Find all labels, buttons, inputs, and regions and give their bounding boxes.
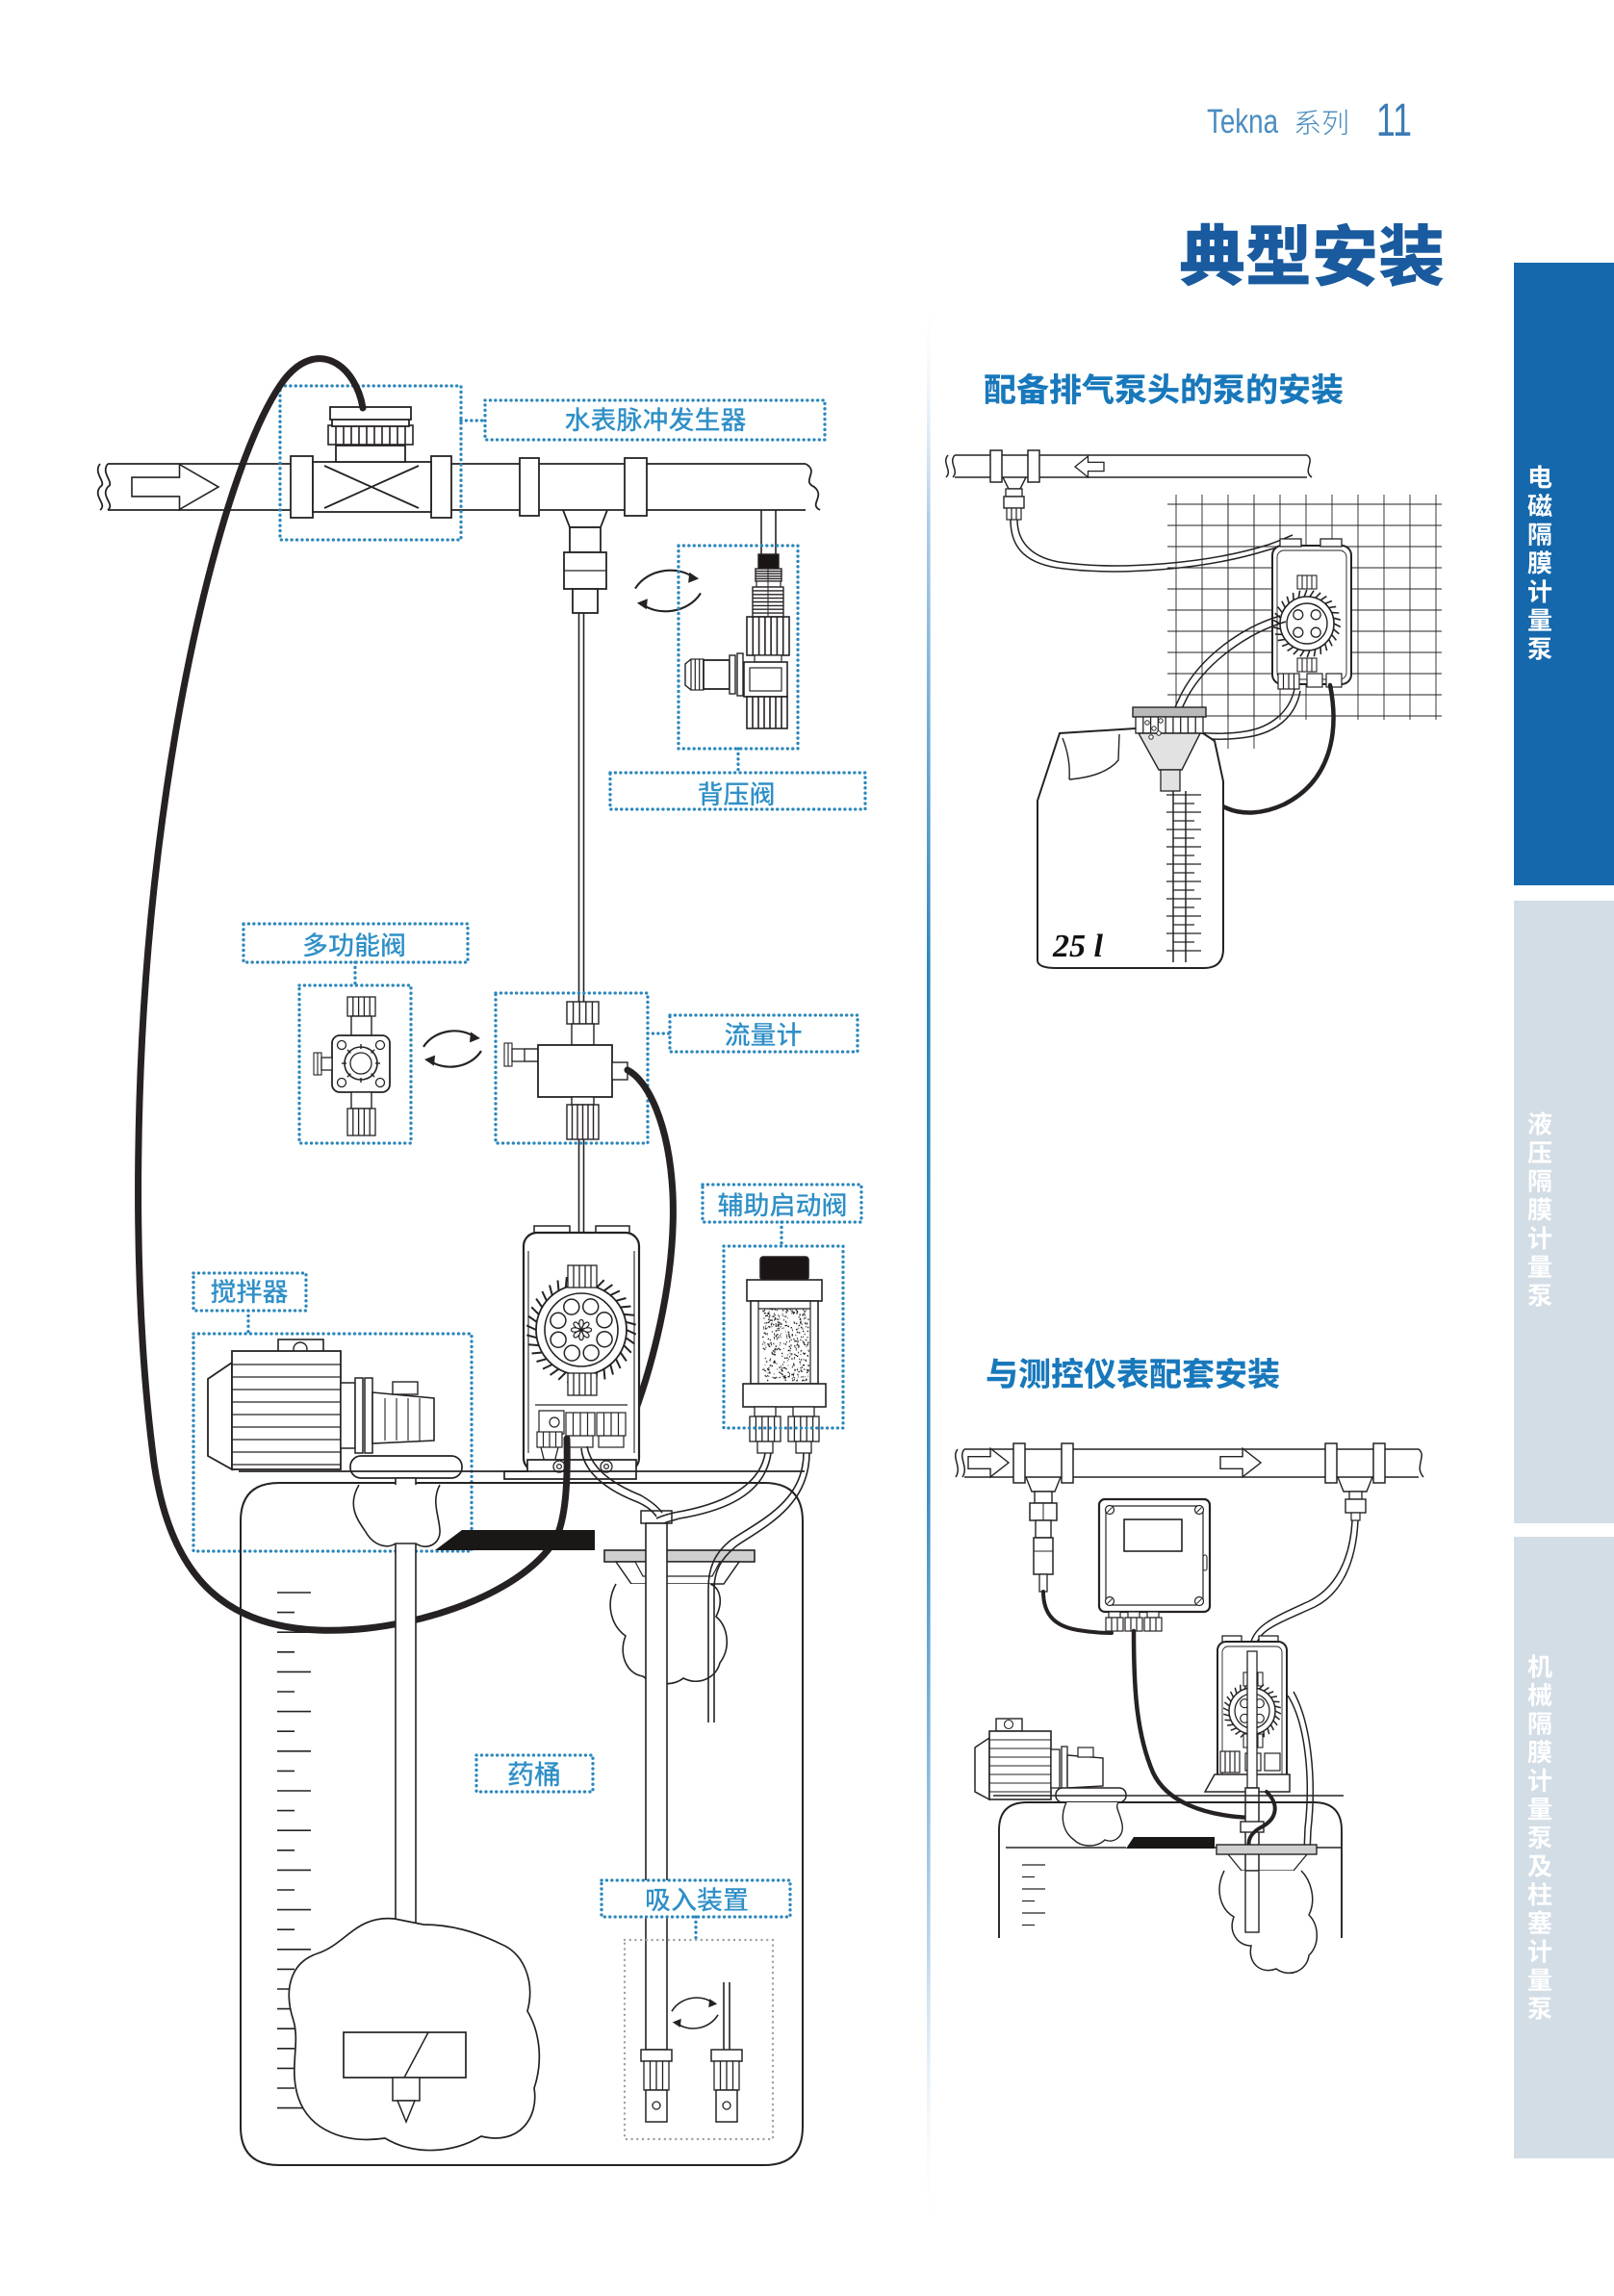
svg-text:25 l: 25 l bbox=[1052, 929, 1104, 964]
svg-text:11: 11 bbox=[1376, 95, 1412, 146]
svg-text:Tekna: Tekna bbox=[1207, 103, 1278, 140]
